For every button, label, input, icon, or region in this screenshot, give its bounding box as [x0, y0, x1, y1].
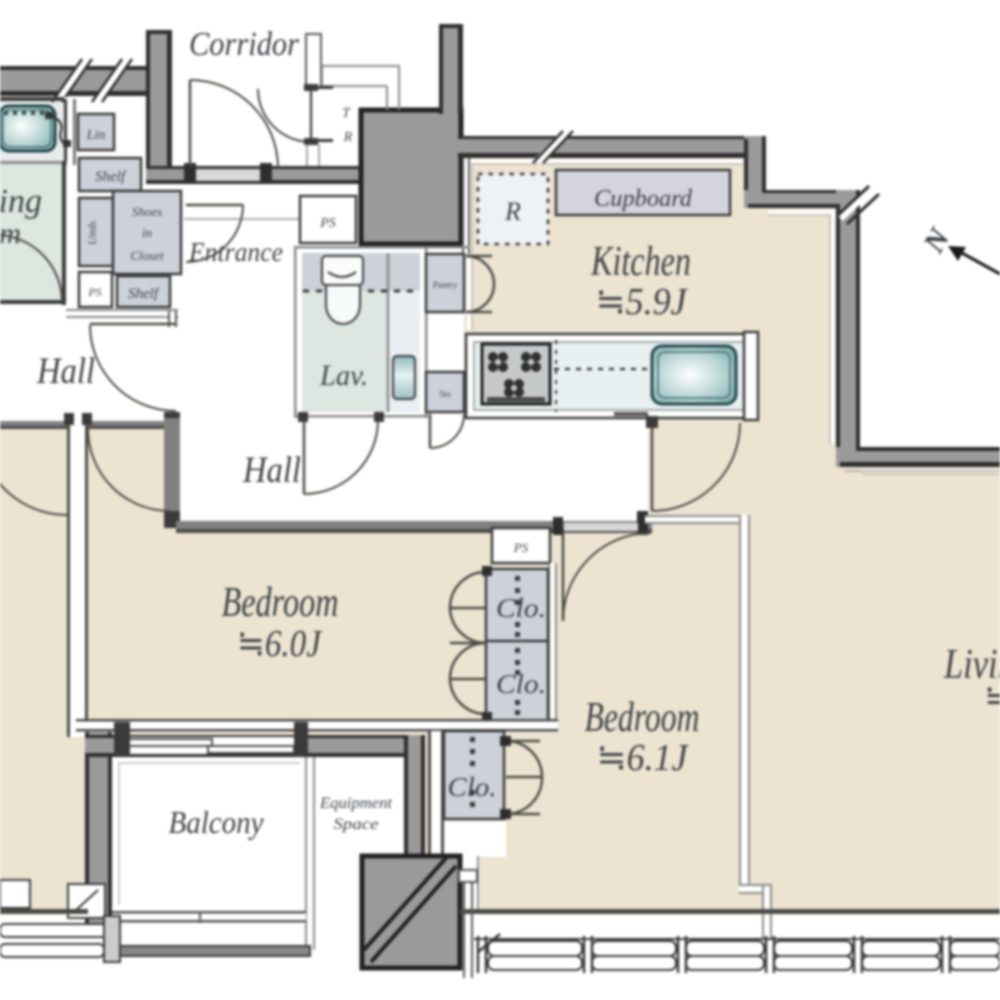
svg-text:Balcony: Balcony	[169, 804, 265, 840]
svg-text:Entrance: Entrance	[188, 237, 283, 267]
svg-text:Pantry: Pantry	[432, 280, 458, 290]
svg-text:Lin: Lin	[86, 128, 106, 143]
svg-text:Corridor: Corridor	[189, 26, 300, 63]
svg-text:≒6.0J: ≒6.0J	[237, 623, 323, 665]
svg-text:≒6.1J: ≒6.1J	[597, 737, 690, 779]
svg-text:Shoes: Shoes	[132, 204, 162, 219]
svg-text:PS: PS	[319, 216, 336, 231]
svg-text:Equipment: Equipment	[319, 795, 393, 812]
svg-text:Sto: Sto	[439, 389, 451, 399]
svg-text:Hall: Hall	[36, 351, 95, 392]
svg-text:Umb.: Umb.	[85, 219, 99, 245]
svg-text:T: T	[342, 106, 351, 121]
svg-text:Shelf: Shelf	[128, 286, 160, 302]
svg-text:Closet: Closet	[130, 248, 164, 263]
svg-text:Space: Space	[334, 816, 379, 833]
svg-text:Shelf: Shelf	[95, 169, 127, 185]
svg-text:Lav.: Lav.	[319, 359, 368, 392]
svg-text:R: R	[504, 197, 521, 226]
svg-text:PS: PS	[513, 540, 529, 555]
svg-text:Washing: Washing	[0, 183, 42, 220]
svg-text:R: R	[343, 130, 353, 145]
svg-text:Kitchen: Kitchen	[590, 239, 691, 285]
svg-text:in: in	[142, 225, 152, 240]
svg-text:Bedroom: Bedroom	[222, 580, 339, 626]
svg-text:≒17.1J: ≒17.1J	[984, 678, 1000, 718]
svg-text:Cupboard: Cupboard	[594, 186, 693, 212]
svg-text:PS: PS	[87, 285, 101, 299]
svg-text:Clo.: Clo.	[496, 593, 546, 623]
svg-text:Room: Room	[0, 217, 21, 250]
svg-text:Hall: Hall	[242, 450, 301, 491]
svg-text:Clo.: Clo.	[448, 772, 497, 802]
svg-text:Clo.: Clo.	[496, 669, 546, 699]
svg-text:≒5.9J: ≒5.9J	[596, 281, 689, 323]
svg-text:Bedroom: Bedroom	[585, 695, 700, 741]
